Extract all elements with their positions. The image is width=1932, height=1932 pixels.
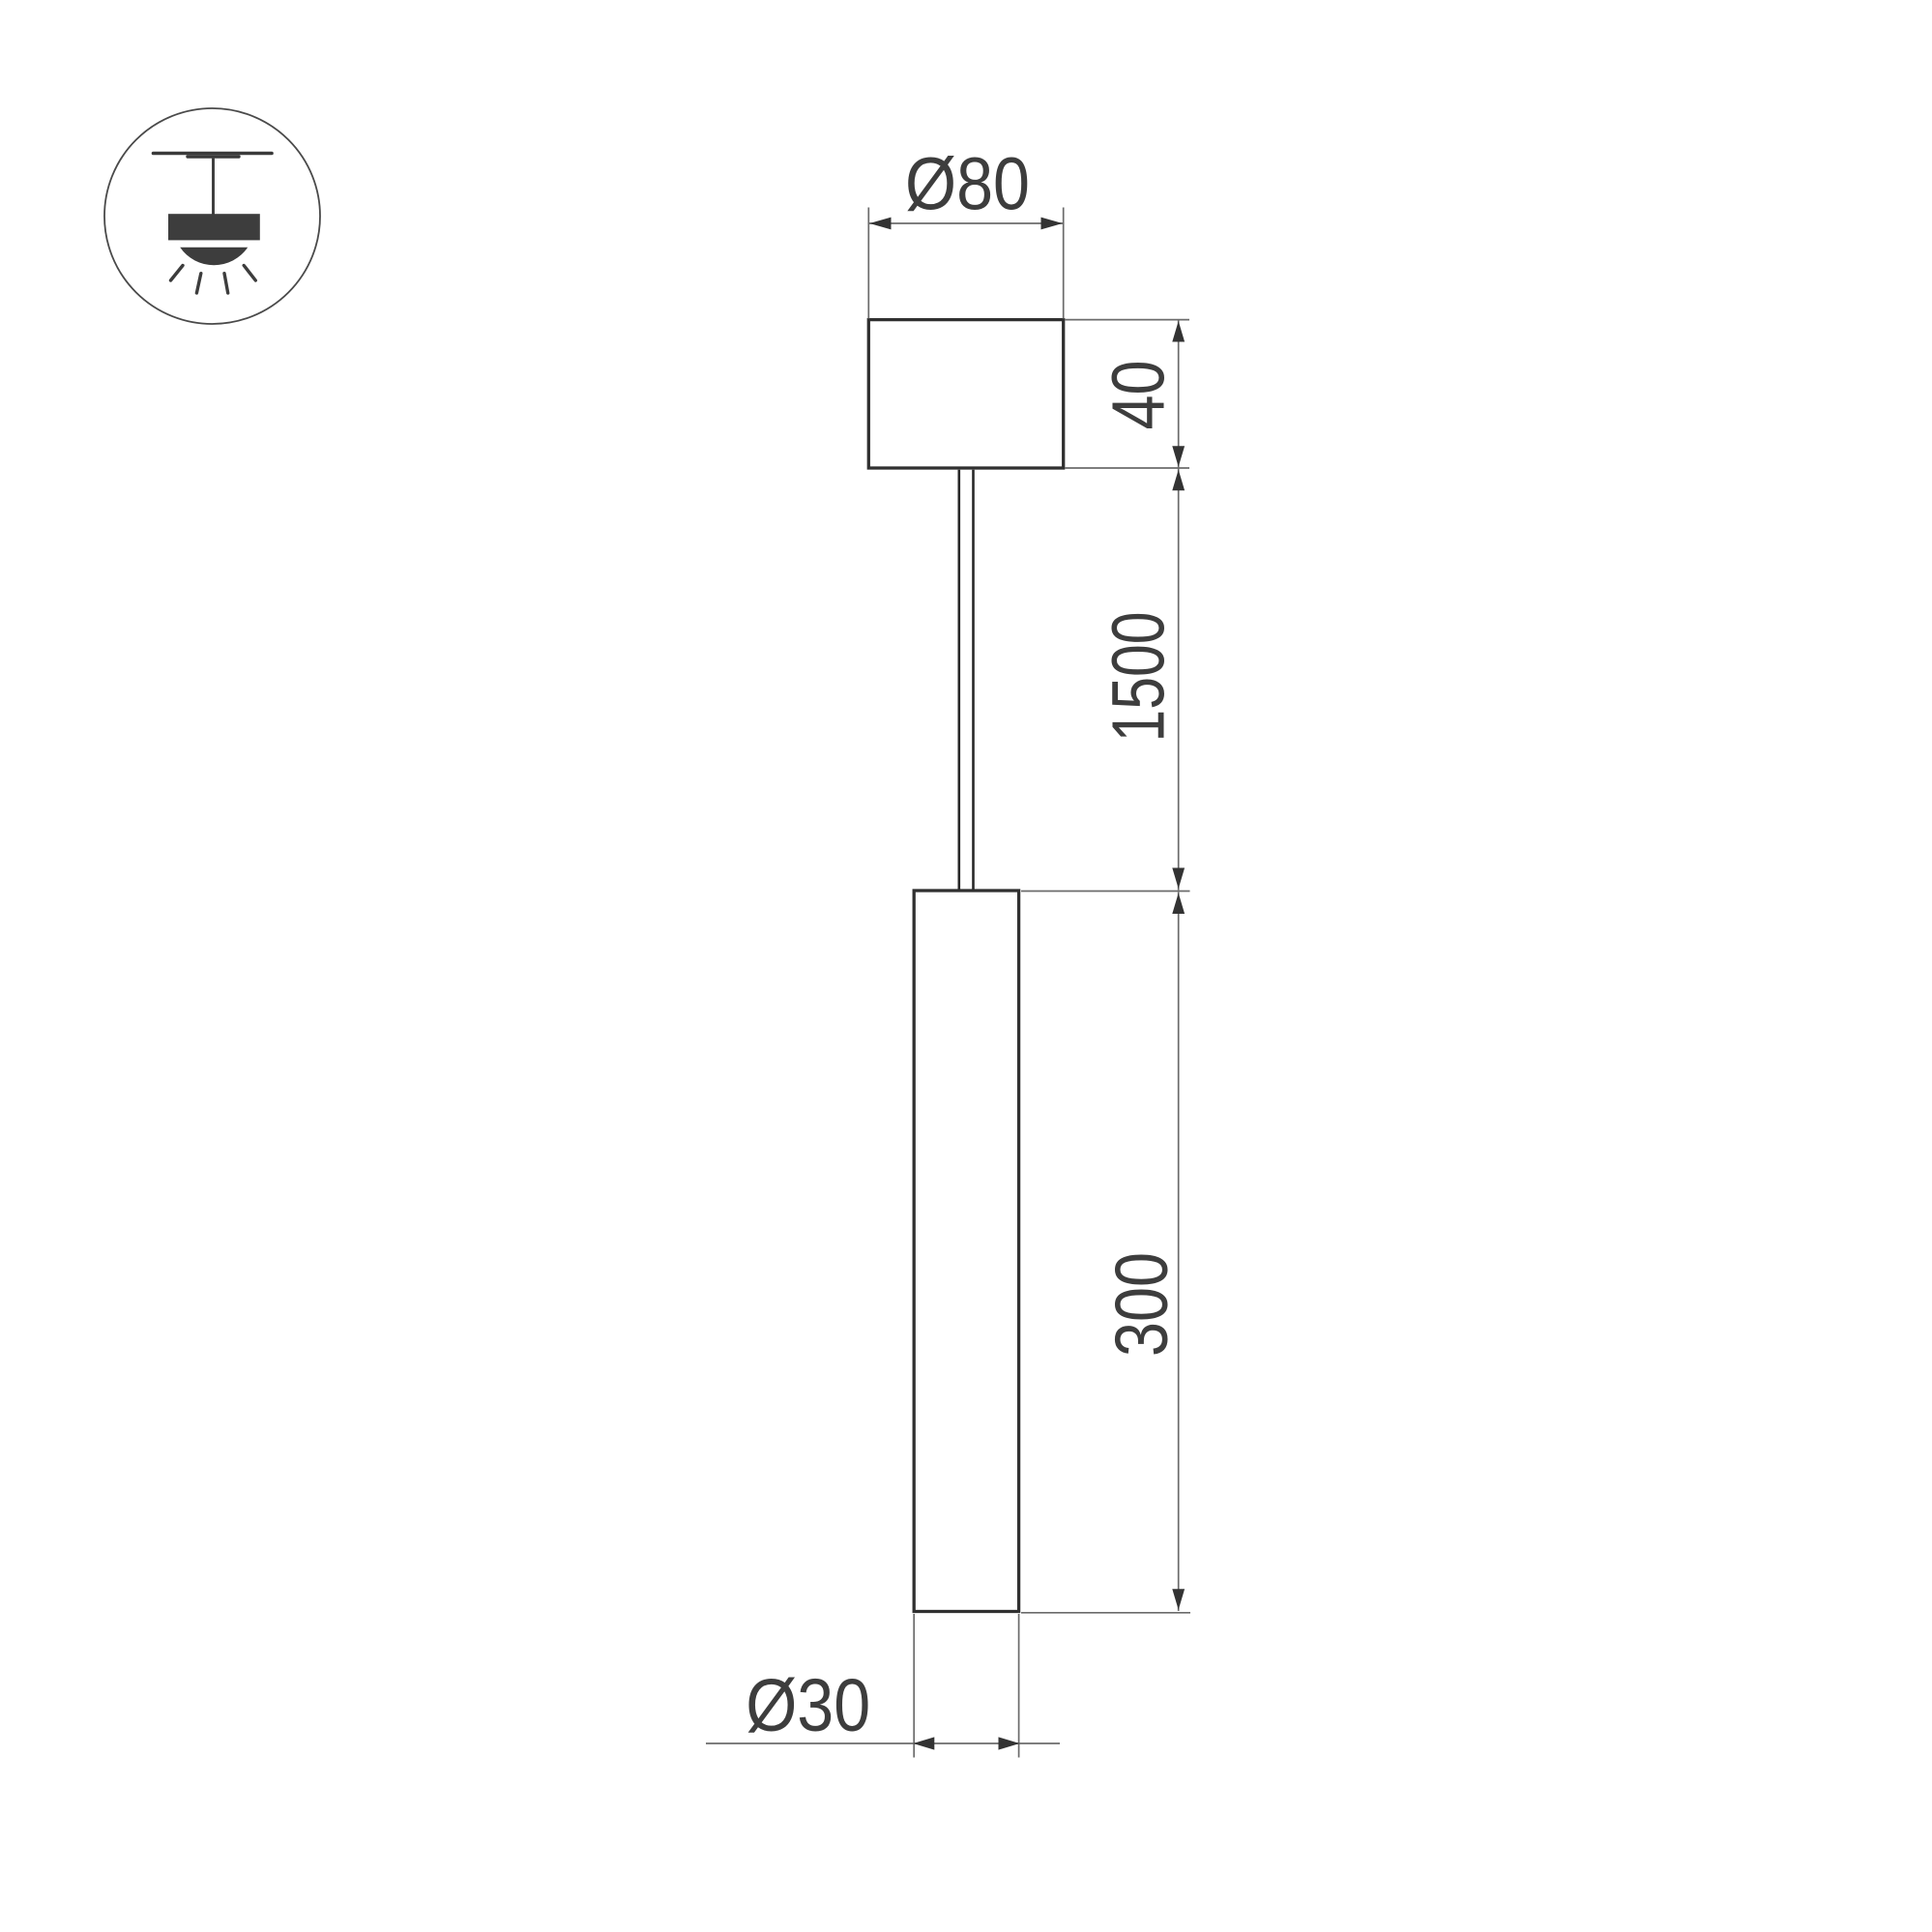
svg-text:300: 300 bbox=[1100, 1252, 1184, 1357]
svg-text:1500: 1500 bbox=[1098, 612, 1181, 743]
svg-text:Ø80: Ø80 bbox=[905, 143, 1030, 226]
svg-text:Ø30: Ø30 bbox=[746, 1664, 870, 1747]
svg-text:40: 40 bbox=[1098, 361, 1181, 430]
